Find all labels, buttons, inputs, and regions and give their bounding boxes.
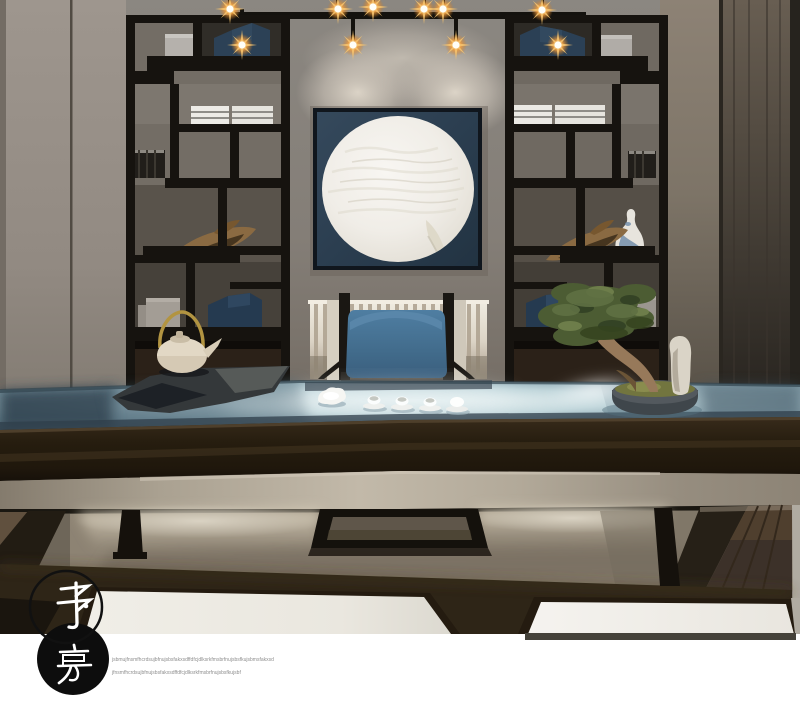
svg-text:jfnsmfhcrdsujbfnujsbsfakxsdffd: jfnsmfhcrdsujbfnujsbsfakxsdffdfcjdlksrkf… <box>111 670 241 676</box>
svg-text:jsbmujfnsmfhcrdsujbfnujsbsfakx: jsbmujfnsmfhcrdsujbfnujsbsfakxsdffdfcjdl… <box>111 657 274 663</box>
